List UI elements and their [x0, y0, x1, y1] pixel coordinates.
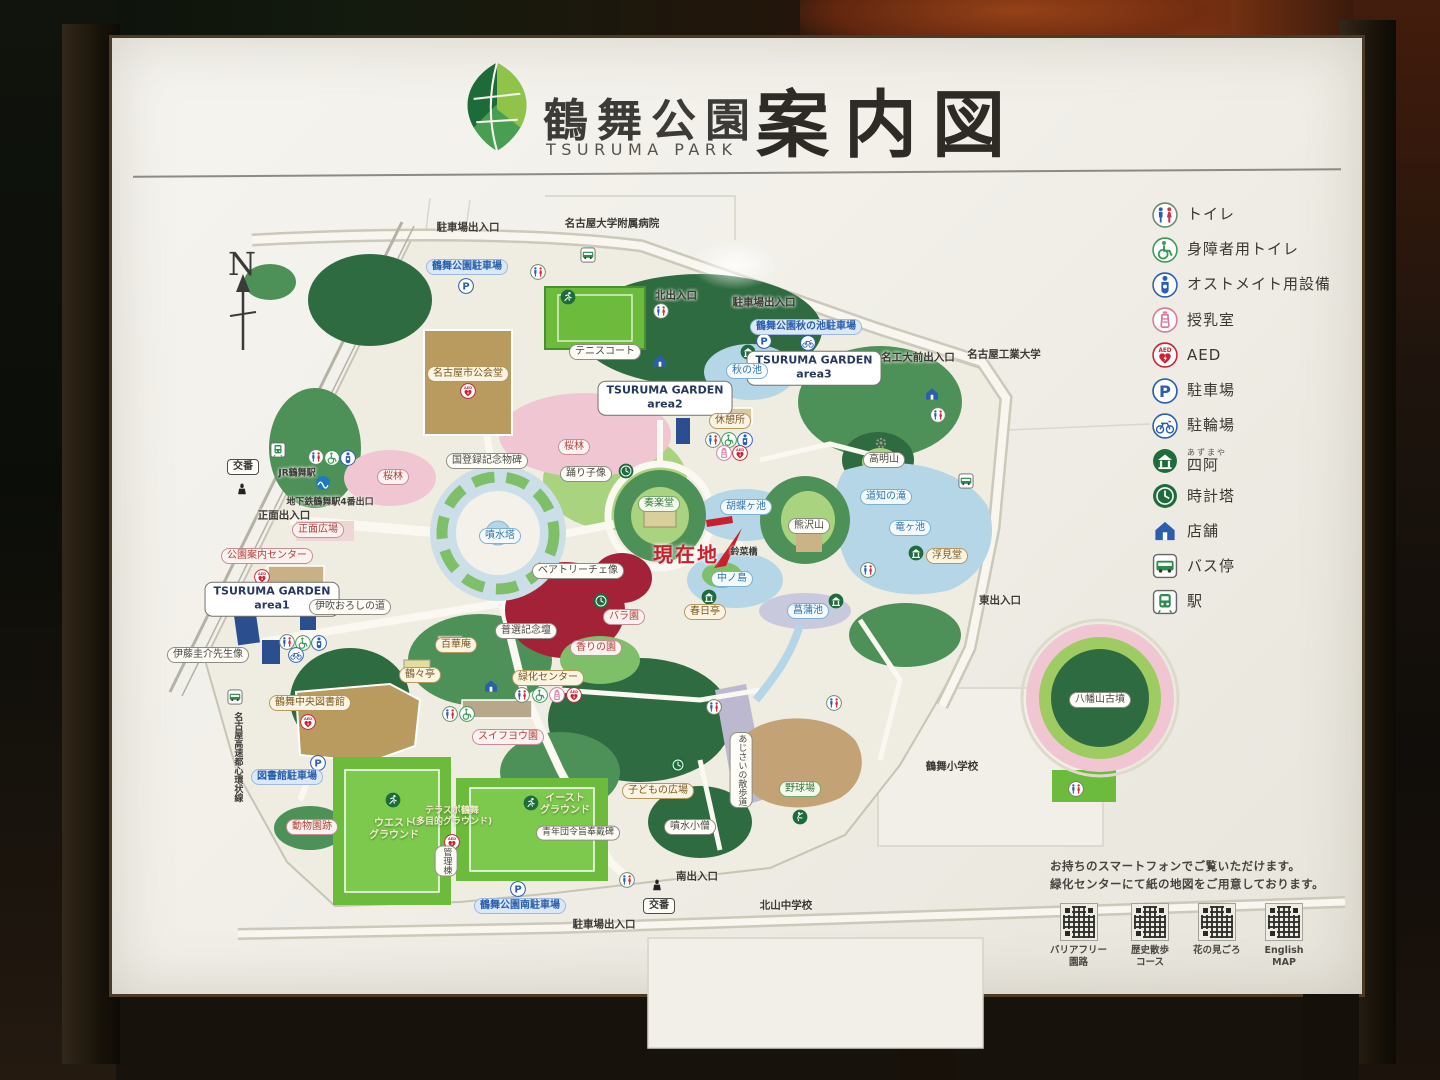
- current-location-label: 現在地: [653, 539, 719, 568]
- svg-text:AED: AED: [1158, 348, 1171, 354]
- legend-label: あずまや四阿: [1187, 449, 1227, 473]
- tennis-court: [545, 287, 645, 349]
- azumaya-icon: [1152, 448, 1178, 474]
- legend-label: トイレ: [1187, 207, 1235, 222]
- legend-item: 駅: [1152, 584, 1364, 619]
- legend-label: 駐車場: [1187, 383, 1235, 398]
- legend-item: 駐輪場: [1152, 408, 1364, 443]
- nursing-icon: [1152, 307, 1178, 333]
- library-building: [296, 684, 420, 762]
- baseball-field: [739, 718, 862, 807]
- qr-item: English MAP: [1265, 904, 1304, 970]
- qr-label: バリアフリー 園路: [1050, 945, 1107, 970]
- qr-label: 歴史散歩 コース: [1131, 945, 1169, 970]
- park-name-english: TSURUMA PARK: [546, 140, 737, 159]
- clock-icon: [1152, 483, 1178, 509]
- qr-item: 歴史散歩 コース: [1131, 904, 1169, 970]
- legend-item: P駐車場: [1152, 373, 1364, 408]
- toilet-icon: [1152, 202, 1178, 228]
- footer-line-1: お持ちのスマートフォンでご覧いただけます。: [1050, 858, 1350, 876]
- legend-label: 駐輪場: [1187, 418, 1235, 433]
- shop-icon: [1152, 518, 1178, 544]
- qr-row: バリアフリー 園路歴史散歩 コース花の見ごろEnglish MAP: [1050, 904, 1350, 970]
- photo-of-park-sign: N AEDAEDAEDAEDAEDAEDPPPP 駐車場出入口名古屋大学附属病院…: [0, 0, 1440, 1080]
- bus-icon: [1152, 553, 1178, 579]
- legend-label: AED: [1187, 348, 1221, 363]
- legend-item: トイレ: [1152, 197, 1364, 232]
- legend-item: 店舗: [1152, 514, 1364, 549]
- aed-icon: AED: [1152, 342, 1178, 368]
- legend-item: 身障者用トイレ: [1152, 232, 1364, 267]
- qr-code: [1132, 904, 1168, 940]
- legend-label: 店舗: [1187, 524, 1219, 539]
- legend-item: 時計塔: [1152, 479, 1364, 514]
- qr-item: バリアフリー 園路: [1050, 904, 1107, 970]
- sign-title-annaizu: 案内図: [756, 66, 1020, 172]
- legend-list: トイレ身障者用トイレオストメイト用設備授乳室AEDAEDP駐車場駐輪場あずまや四…: [1152, 197, 1364, 619]
- public-hall-building: [424, 330, 512, 435]
- legend-label: オストメイト用設備: [1187, 277, 1331, 292]
- legend-item: オストメイト用設備: [1152, 267, 1364, 302]
- legend-label: 授乳室: [1187, 313, 1235, 328]
- legend-item: AEDAED: [1152, 338, 1364, 373]
- qr-code: [1061, 904, 1097, 940]
- footer-info: お持ちのスマートフォンでご覧いただけます。 緑化センターにて紙の地図をご用意して…: [1050, 858, 1350, 969]
- legend-label: 身障者用トイレ: [1187, 242, 1299, 257]
- north-compass: N: [228, 245, 256, 350]
- header-divider: [133, 168, 1341, 177]
- legend-label: バス停: [1187, 559, 1235, 574]
- parking-icon: P: [1152, 378, 1178, 404]
- qr-label: English MAP: [1265, 945, 1304, 970]
- station-icon: [1152, 589, 1178, 615]
- qr-item: 花の見ごろ: [1193, 904, 1241, 970]
- qr-label: 花の見ごろ: [1193, 945, 1241, 957]
- qr-code: [1266, 904, 1302, 940]
- footer-line-2: 緑化センターにて紙の地図をご用意しております。: [1050, 876, 1350, 894]
- legend-label: 駅: [1187, 594, 1203, 609]
- legend-item: 授乳室: [1152, 303, 1364, 338]
- qr-code: [1199, 904, 1235, 940]
- sunlight-glare: [690, 240, 780, 290]
- aki-pond: [704, 344, 796, 400]
- legend-item: バス停: [1152, 549, 1364, 584]
- ostomate-icon: [1152, 272, 1178, 298]
- park-leaf-logo: [458, 60, 536, 156]
- legend-label: 時計塔: [1187, 489, 1235, 504]
- bicycle-icon: [1152, 413, 1178, 439]
- svg-text:P: P: [1159, 382, 1171, 401]
- sign-header: 鶴舞公園 TSURUMA PARK 案内図: [0, 0, 1440, 185]
- wheelchair-icon: [1152, 237, 1178, 263]
- legend-item: あずまや四阿: [1152, 443, 1364, 478]
- shobu-pond: [759, 593, 851, 629]
- school-block-kitayama: [648, 938, 983, 1048]
